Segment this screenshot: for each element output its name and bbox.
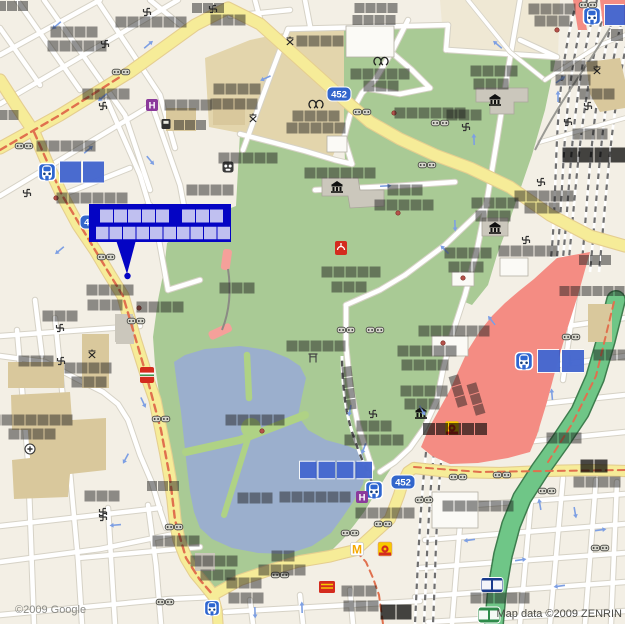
svg-text:©2009 Google: ©2009 Google — [15, 604, 86, 616]
svg-text:452: 452 — [395, 478, 411, 489]
svg-text:Map data ©2009 ZENRIN: Map data ©2009 ZENRIN — [497, 608, 623, 620]
svg-text:H: H — [359, 493, 366, 504]
svg-text:M: M — [352, 543, 362, 557]
svg-text:452: 452 — [331, 90, 347, 101]
svg-text:H: H — [149, 101, 156, 112]
